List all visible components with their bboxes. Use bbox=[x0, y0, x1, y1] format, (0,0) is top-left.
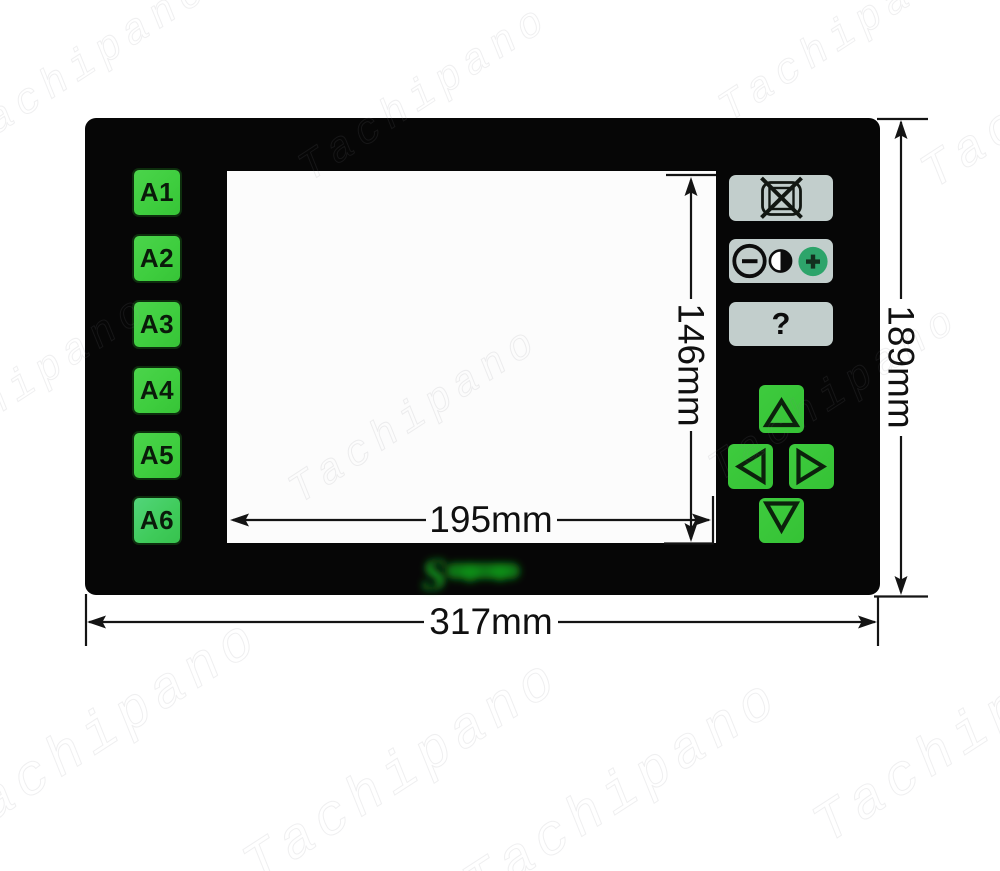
svg-text:146mm: 146mm bbox=[671, 303, 712, 426]
svg-text:S: S bbox=[422, 550, 446, 599]
svg-text:195mm: 195mm bbox=[429, 499, 552, 540]
svg-text:317mm: 317mm bbox=[429, 601, 552, 642]
